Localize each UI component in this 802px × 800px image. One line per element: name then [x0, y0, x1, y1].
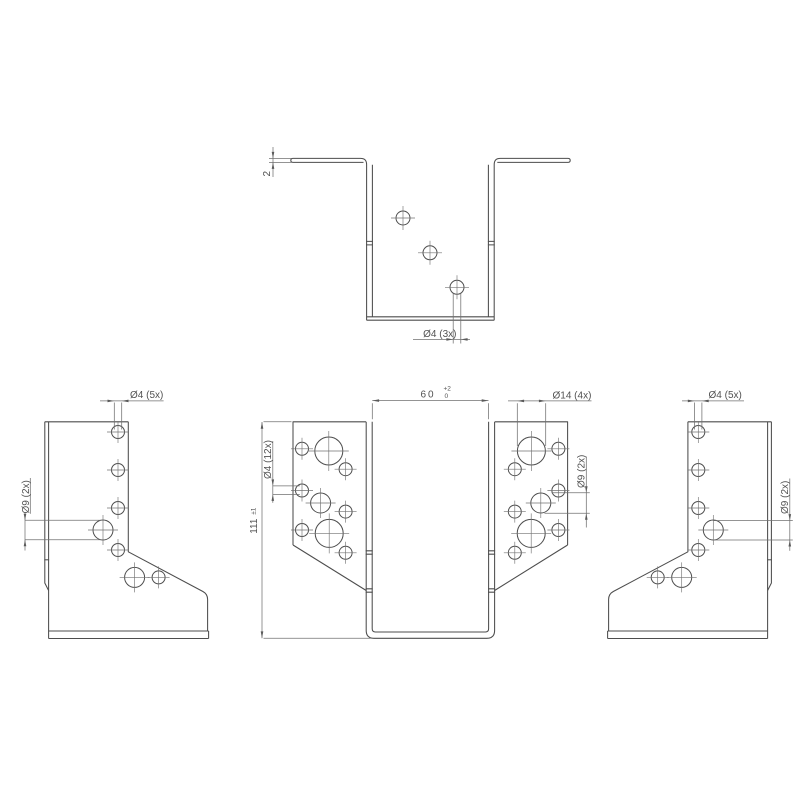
top-view-outline: [291, 158, 570, 320]
hole-marker: [687, 459, 709, 481]
hole-marker: [547, 480, 569, 502]
hole-marker: [107, 421, 129, 443]
hole-marker: [291, 519, 313, 541]
hole-marker: [309, 513, 349, 553]
hole-marker: [687, 421, 709, 443]
hole-marker: [511, 513, 551, 553]
hole-marker: [504, 542, 526, 564]
top-hole-dimension: Ø4 (3x): [413, 293, 470, 344]
hole-marker: [335, 501, 357, 523]
front-view-outline: [293, 422, 568, 639]
hole-marker: [647, 566, 669, 588]
hole-marker: [391, 206, 415, 230]
hole-marker: [107, 539, 129, 561]
hole-marker: [418, 241, 442, 265]
front-view: 60 +2 0 111 ±1 Ø4 (12x): [249, 385, 591, 638]
hole-marker: [107, 459, 129, 481]
height-label: 111: [249, 518, 260, 534]
left-small-hole-label: Ø4 (5x): [130, 390, 163, 401]
right-side-view: Ø4 (5x) Ø9 (2x): [608, 390, 793, 638]
right-small-hole-dimension: Ø4 (5x): [682, 390, 744, 429]
hole-marker: [120, 562, 150, 592]
left-side-view: Ø4 (5x) Ø9 (2x): [21, 390, 209, 638]
width-dimension: 60 +2 0: [372, 385, 488, 419]
hole-marker: [107, 497, 129, 519]
front-view-holes: [291, 431, 569, 564]
hole-marker: [504, 501, 526, 523]
top-view: 2 Ø4 (3x): [262, 147, 570, 344]
technical-drawing: 2 Ø4 (3x): [0, 0, 802, 800]
hole-marker: [291, 480, 313, 502]
hole-marker: [687, 497, 709, 519]
front-small-hole-dimension: Ø4 (12x): [263, 440, 300, 503]
width-tol-upper: +2: [444, 385, 452, 392]
left-small-hole-dimension: Ø4 (5x): [100, 390, 164, 429]
front-large-hole-label: Ø14 (4x): [553, 390, 592, 401]
left-view-outline: [44, 422, 208, 639]
hole-marker: [547, 519, 569, 541]
hole-marker: [88, 515, 118, 545]
hole-marker: [306, 488, 336, 518]
right-large-hole-label: Ø9 (2x): [780, 481, 791, 514]
hole-marker: [291, 438, 313, 460]
front-medium-hole-label: Ø9 (2x): [577, 455, 588, 488]
right-view-outline: [608, 422, 772, 639]
height-tol: ±1: [251, 507, 258, 515]
width-label: 60: [421, 390, 436, 401]
width-tol-lower: 0: [445, 393, 449, 400]
top-view-holes: [391, 206, 469, 299]
right-large-hole-dimension: Ø9 (2x): [714, 479, 793, 551]
thickness-label: 2: [262, 171, 273, 177]
front-large-hole-dimension: Ø14 (4x): [508, 390, 592, 446]
hole-marker: [309, 431, 349, 471]
hole-marker: [445, 275, 469, 299]
thickness-dimension: 2: [262, 147, 292, 177]
left-large-hole-label: Ø9 (2x): [21, 480, 32, 513]
left-large-hole-dimension: Ø9 (2x): [21, 478, 105, 551]
hole-marker: [698, 515, 728, 545]
hole-marker: [547, 438, 569, 460]
hole-marker: [687, 539, 709, 561]
top-hole-label: Ø4 (3x): [423, 329, 456, 340]
hole-marker: [148, 566, 170, 588]
hole-marker: [335, 542, 357, 564]
front-small-hole-label: Ø4 (12x): [263, 440, 274, 479]
right-small-hole-label: Ø4 (5x): [709, 390, 742, 401]
drawing-canvas: 2 Ø4 (3x): [0, 0, 802, 800]
hole-marker: [667, 562, 697, 592]
